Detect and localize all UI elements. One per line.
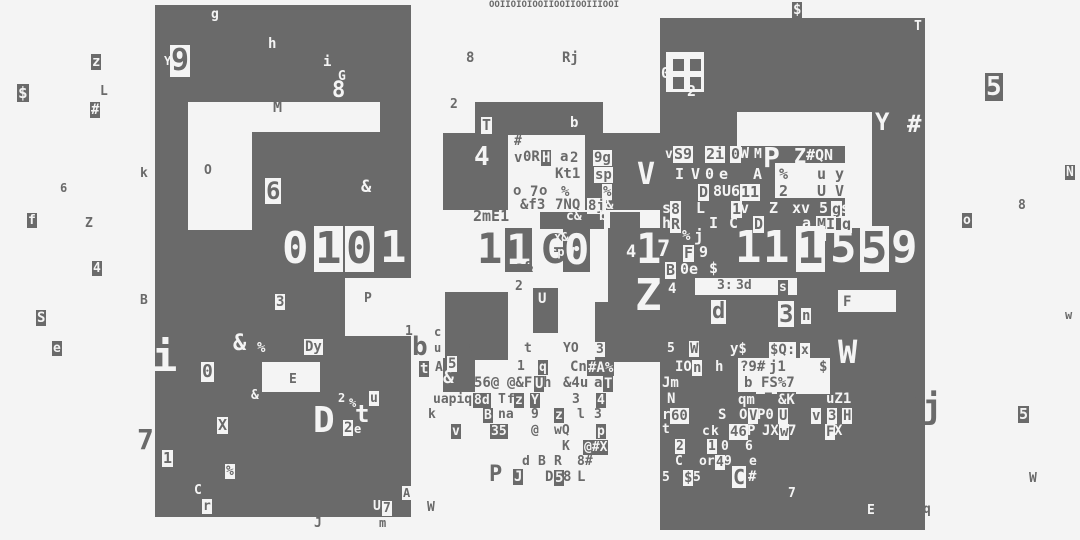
glyph: 0 — [721, 440, 729, 453]
glyph: or — [699, 455, 715, 468]
glyph: P — [747, 424, 755, 438]
glyph: 2mE1 — [473, 209, 509, 224]
glyph: 2 — [569, 150, 579, 166]
glyph: j — [922, 390, 942, 424]
glyph: 5 — [693, 471, 701, 484]
glyph: v — [811, 408, 821, 424]
glyph: c& — [566, 210, 582, 223]
glyph: 1 — [380, 226, 407, 270]
glyph: @ — [531, 424, 539, 437]
glyph: 7 — [788, 424, 796, 438]
glyph: 0 — [201, 362, 214, 382]
glyph: 9 — [891, 226, 918, 270]
glyph: x — [800, 343, 810, 358]
glyph: 2 — [343, 420, 353, 436]
glyph: 1 — [796, 226, 825, 272]
glyph: t — [524, 342, 532, 355]
glyph: v — [914, 392, 922, 405]
glyph: 7 — [657, 239, 670, 261]
glyph: S9 — [673, 146, 693, 163]
glyph: Cn — [570, 360, 587, 374]
glyph: 2 — [338, 392, 345, 404]
glyph: 4 — [667, 281, 677, 297]
glyph: B — [140, 294, 148, 307]
glyph: T — [914, 20, 922, 33]
glyph: W — [838, 336, 857, 368]
glyph: 7 — [382, 501, 392, 516]
glyph: q — [538, 360, 548, 375]
glyph: q — [923, 503, 931, 516]
glyph: P — [763, 144, 780, 172]
glyph: Z — [764, 392, 772, 406]
glyph: $ — [466, 343, 474, 357]
glyph: Jm — [662, 376, 679, 390]
glyph: V — [637, 160, 655, 190]
glyph: 9 — [699, 245, 708, 260]
glyph: d — [711, 300, 726, 324]
glyph: T — [498, 393, 506, 406]
glyph: % — [257, 341, 265, 355]
glyph: Z — [635, 274, 662, 318]
glyph: A — [753, 167, 762, 182]
glyph: E — [593, 184, 601, 198]
glyph: 8# — [577, 455, 593, 468]
glyph: U — [817, 184, 826, 199]
glyph: Y — [875, 110, 889, 134]
glyph: g — [211, 8, 219, 21]
glyph: 8 — [466, 51, 474, 65]
glyph: &f3 — [520, 198, 545, 212]
glyph: A — [402, 486, 411, 500]
glyph: @#X — [583, 440, 608, 455]
glyph: l — [577, 408, 585, 421]
glyph: 6 — [60, 182, 67, 194]
glyph: 1 — [162, 450, 173, 467]
glyph: qm — [737, 392, 756, 408]
glyph: J — [513, 469, 523, 485]
glyph: uapiq — [433, 393, 472, 406]
glyph: V — [835, 184, 844, 199]
glyph: 46 — [729, 424, 748, 440]
glyph: 5 — [830, 226, 857, 270]
glyph: 3 — [275, 294, 285, 310]
glyph: IO — [675, 360, 692, 374]
block-rect — [345, 278, 411, 336]
glyph: 1 — [763, 226, 790, 270]
glyph: n — [801, 308, 811, 324]
glyph: 60 — [670, 408, 689, 424]
glyph: o — [962, 213, 972, 228]
glyph: # — [748, 470, 756, 484]
glyph: 1 — [222, 226, 249, 270]
glyph: L — [696, 201, 705, 216]
glyph: M — [754, 148, 762, 161]
glyph: 3 — [778, 301, 794, 327]
glyph: Rj — [562, 51, 579, 65]
glyph: N — [1065, 165, 1075, 180]
glyph: u — [434, 342, 441, 354]
glyph: c — [434, 326, 441, 338]
glyph: & — [443, 369, 454, 387]
glyph: 3 — [594, 408, 602, 421]
glyph: # — [514, 135, 522, 148]
glyph: 1 — [314, 226, 343, 272]
glyph: Dy — [304, 339, 323, 355]
glyph: W — [1029, 472, 1037, 485]
glyph: e — [354, 423, 361, 435]
glyph: 9g — [593, 150, 612, 166]
glyph: sp — [594, 167, 613, 183]
glyph: C — [675, 455, 683, 468]
glyph: t — [419, 361, 429, 377]
glyph: K — [562, 440, 570, 453]
glyph: FS%7 — [761, 376, 795, 390]
glyph: & — [233, 333, 246, 355]
glyph: 8 — [332, 80, 345, 102]
block-rect — [188, 132, 252, 230]
glyph: $Q: — [769, 342, 796, 358]
glyph: 5 — [819, 201, 828, 216]
glyph: 5 — [985, 73, 1003, 101]
glyph: h — [268, 37, 276, 51]
glyph: 0 — [661, 66, 670, 81]
glyph: i — [152, 336, 177, 378]
glyph: e — [719, 167, 728, 182]
glyph: cp — [550, 246, 564, 258]
glyph: 2 — [515, 280, 523, 293]
glyph: D — [313, 403, 335, 439]
glyph: E — [289, 373, 297, 386]
glyph: 35 — [490, 424, 508, 439]
glyph: X — [834, 424, 842, 438]
glyph: 8 — [563, 470, 571, 484]
glyph: b — [570, 116, 578, 130]
glyph: F — [843, 295, 851, 309]
glyph: 8U6 — [713, 184, 740, 199]
glyph: T — [481, 117, 492, 134]
glyph: #QN — [806, 148, 833, 163]
glyph: uZ1 — [826, 392, 851, 406]
glyph: Kt1 — [555, 167, 580, 181]
glyph: n — [692, 360, 702, 376]
glyph: 1 — [477, 228, 502, 270]
glyph: h — [543, 376, 551, 390]
glyph: # — [90, 102, 100, 118]
glyph: b — [744, 376, 752, 390]
glyph: S — [718, 408, 726, 422]
glyph: 3d — [736, 279, 752, 292]
glyph: % — [225, 464, 235, 479]
glyph: L — [577, 470, 585, 484]
glyph: 5 — [1018, 406, 1029, 423]
glyph: L — [100, 85, 108, 98]
glyph: B — [483, 408, 493, 423]
block-rect — [673, 77, 684, 89]
glyph: s — [778, 280, 788, 295]
glyph: E — [867, 504, 875, 517]
glyph: wQ — [554, 424, 570, 437]
glyph: # — [907, 112, 921, 136]
block-rect — [188, 102, 380, 132]
glyph: 9 — [724, 455, 732, 468]
glyph: J — [314, 517, 322, 530]
glyph: Z — [794, 146, 806, 166]
glyph: U — [778, 408, 788, 424]
glyph: 9 — [170, 45, 190, 77]
glyph: $ — [819, 360, 827, 374]
glyph: $ — [792, 2, 802, 18]
glyph: X — [217, 417, 228, 434]
glyph: % — [779, 167, 788, 182]
glyph: k — [711, 425, 719, 438]
glyph: e — [52, 341, 62, 356]
glyph: 4 — [596, 393, 606, 408]
glyph: 4 — [474, 144, 490, 170]
glyph: u — [817, 167, 826, 182]
glyph: na — [498, 408, 514, 421]
glyph: V — [691, 167, 700, 182]
glyph: N — [667, 392, 675, 406]
glyph: b — [599, 210, 607, 223]
glyph: w — [1065, 309, 1072, 321]
glyph: y — [835, 167, 844, 182]
glyph: D — [545, 470, 553, 484]
glyph: b — [412, 334, 428, 360]
glyph: R — [670, 216, 681, 233]
glyph: ?9# — [740, 360, 765, 374]
glyph: H — [842, 408, 852, 424]
glyph: 2i — [705, 146, 725, 163]
glyph: s — [841, 201, 850, 216]
glyph: a — [560, 150, 568, 164]
glyph: k — [428, 408, 436, 421]
glyph: 6 — [745, 440, 753, 453]
glyph: P — [489, 464, 502, 486]
glyph: 9 — [531, 408, 539, 421]
glyph: 3 — [827, 408, 837, 424]
glyph: h — [715, 360, 723, 374]
glyph: 6 — [265, 178, 281, 204]
glyph: T — [603, 376, 613, 392]
glyph: 1 — [517, 360, 525, 373]
glyph: d — [522, 455, 530, 468]
glyph: U — [537, 291, 547, 307]
glyph: I — [675, 167, 684, 182]
glyph: 7 — [137, 426, 154, 454]
glyph: B — [538, 455, 546, 468]
glyph: v — [665, 148, 673, 161]
glyph: f — [27, 213, 37, 228]
glyph: & — [251, 389, 259, 402]
glyph: H — [541, 150, 551, 166]
glyph: 1 — [735, 226, 762, 270]
glyph: % — [682, 229, 690, 243]
glyph: ua — [544, 262, 558, 274]
block-rect — [690, 59, 701, 71]
glyph: 2 — [675, 439, 685, 454]
glyph: p — [596, 424, 606, 439]
glyph: 3 — [572, 393, 580, 406]
glyph: &4u — [563, 376, 588, 390]
glyph: Z — [85, 217, 93, 230]
glyph: e — [749, 455, 757, 468]
glyph: $ — [683, 470, 693, 486]
glyph: 0e — [680, 262, 698, 277]
glyph: v — [451, 424, 461, 439]
glyph: @&F — [507, 376, 532, 390]
glyph: Y — [530, 393, 540, 408]
glyph: W — [567, 246, 574, 258]
glyph: 56@ — [474, 376, 499, 390]
glyph: C — [732, 466, 746, 488]
glyph: 0 — [281, 226, 310, 272]
glitch-art-canvas: OOIIOIOIOOIIOOIIOOIIIOOIghY9iG8MO6&3P111… — [0, 0, 1080, 540]
glyph: & — [361, 179, 371, 196]
glyph: 3 — [595, 342, 605, 357]
glyph: S — [36, 310, 46, 326]
glyph: u — [369, 391, 379, 406]
glyph: OOIIOIOIOOIIOOIIOOIIIOOI — [489, 1, 619, 10]
glyph: a& — [515, 260, 533, 275]
glyph: U — [373, 500, 381, 513]
glyph: j1 — [769, 360, 786, 374]
glyph: v — [740, 201, 749, 216]
glyph: I — [709, 216, 718, 231]
glyph: 3: — [717, 279, 733, 292]
glyph: i — [323, 55, 331, 69]
glyph: o — [539, 184, 547, 198]
glyph: A — [435, 361, 443, 374]
glyph: R — [554, 455, 562, 468]
glyph: P — [364, 292, 372, 305]
glyph: 0 — [345, 226, 374, 272]
glyph: v — [513, 150, 523, 166]
glyph: y$ — [730, 342, 747, 356]
glyph: 4 — [92, 261, 102, 276]
glyph: C — [194, 484, 202, 497]
block-rect — [673, 59, 684, 71]
glyph: k — [140, 167, 148, 180]
glyph: O — [204, 164, 212, 177]
glyph: $ — [709, 261, 718, 276]
glyph: W — [689, 341, 699, 357]
glyph: 5 — [860, 226, 889, 272]
glyph: B — [665, 262, 676, 279]
glyph: W — [740, 146, 749, 161]
glyph: z — [554, 408, 564, 423]
block-rect — [445, 292, 508, 360]
glyph: YO — [563, 342, 579, 355]
glyph: #A% — [587, 360, 614, 376]
block-rect — [475, 102, 603, 135]
glyph: 5 — [662, 471, 670, 484]
glyph: 2 — [779, 184, 788, 199]
glyph: &K — [777, 392, 796, 408]
glyph: W — [427, 501, 435, 514]
glyph: JX — [762, 424, 779, 438]
glyph: m — [379, 517, 386, 529]
glyph: c — [702, 425, 710, 438]
glyph: 1 — [707, 439, 717, 454]
glyph: r — [202, 499, 212, 514]
glyph: 0R — [523, 150, 540, 164]
glyph: M — [273, 100, 282, 115]
glyph: o — [513, 184, 521, 198]
glyph: j — [694, 228, 704, 244]
glyph: x& — [554, 231, 568, 243]
glyph: t — [662, 423, 670, 436]
glyph: 7 — [788, 487, 796, 500]
glyph: a — [594, 376, 602, 390]
glyph: 5 — [667, 342, 675, 355]
glyph: 1 — [252, 226, 279, 270]
glyph: 2 — [687, 84, 696, 99]
glyph: O — [739, 408, 747, 422]
glyph: 8 — [1018, 199, 1026, 212]
glyph: 8d — [473, 393, 491, 408]
glyph: P0 — [757, 408, 774, 422]
glyph: Z — [769, 201, 778, 216]
glyph: 2 — [450, 98, 458, 111]
glyph: $ — [17, 84, 29, 102]
glyph: z — [91, 54, 101, 70]
glyph: 0 — [705, 167, 714, 182]
glyph: z — [514, 393, 524, 408]
